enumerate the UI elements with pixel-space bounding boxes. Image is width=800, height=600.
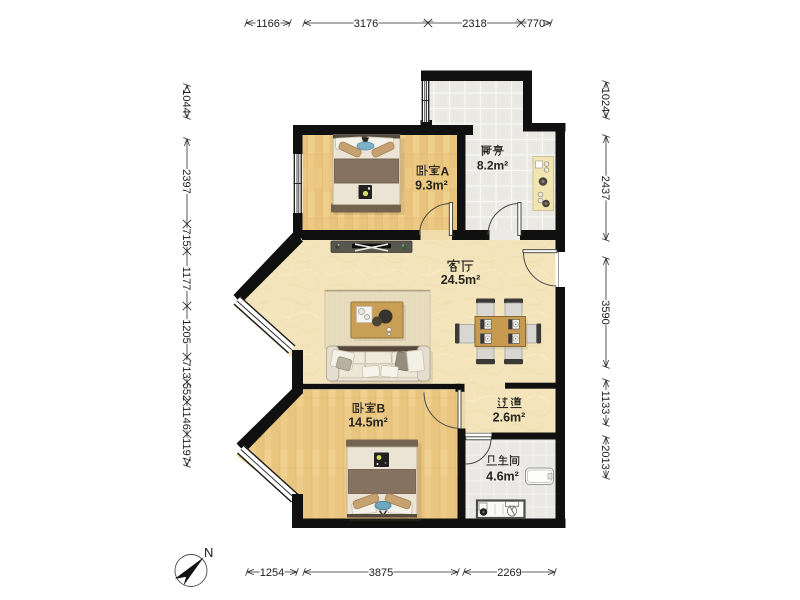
svg-text:1146: 1146 <box>180 406 192 430</box>
svg-text:2397: 2397 <box>180 169 192 193</box>
svg-text:9.3m²: 9.3m² <box>415 179 448 193</box>
svg-text:3590: 3590 <box>599 300 611 324</box>
svg-text:2013: 2013 <box>599 445 611 469</box>
svg-text:1177: 1177 <box>180 267 192 291</box>
svg-text:2318: 2318 <box>462 18 486 30</box>
svg-text:3176: 3176 <box>354 18 378 30</box>
svg-text:B: B <box>377 402 386 416</box>
svg-text:713: 713 <box>180 360 192 378</box>
svg-text:14.5m²: 14.5m² <box>348 416 388 430</box>
svg-text:770: 770 <box>527 18 545 30</box>
svg-text:4.6m²: 4.6m² <box>486 470 519 484</box>
svg-text:1254: 1254 <box>260 567 284 579</box>
svg-text:2437: 2437 <box>599 176 611 200</box>
svg-text:715: 715 <box>180 228 192 246</box>
svg-text:1166: 1166 <box>256 18 280 30</box>
svg-text:A: A <box>441 165 450 179</box>
svg-text:1197: 1197 <box>180 438 192 462</box>
svg-text:24.5m²: 24.5m² <box>441 273 481 287</box>
svg-text:1024: 1024 <box>599 88 611 112</box>
svg-text:8.2m²: 8.2m² <box>477 159 508 173</box>
svg-text:2.6m²: 2.6m² <box>493 411 526 425</box>
svg-text:2269: 2269 <box>497 567 521 579</box>
svg-text:N: N <box>204 545 213 560</box>
svg-text:3875: 3875 <box>369 567 393 579</box>
svg-text:1133: 1133 <box>599 391 611 415</box>
svg-text:1205: 1205 <box>180 319 192 343</box>
svg-text:1044: 1044 <box>180 89 192 113</box>
